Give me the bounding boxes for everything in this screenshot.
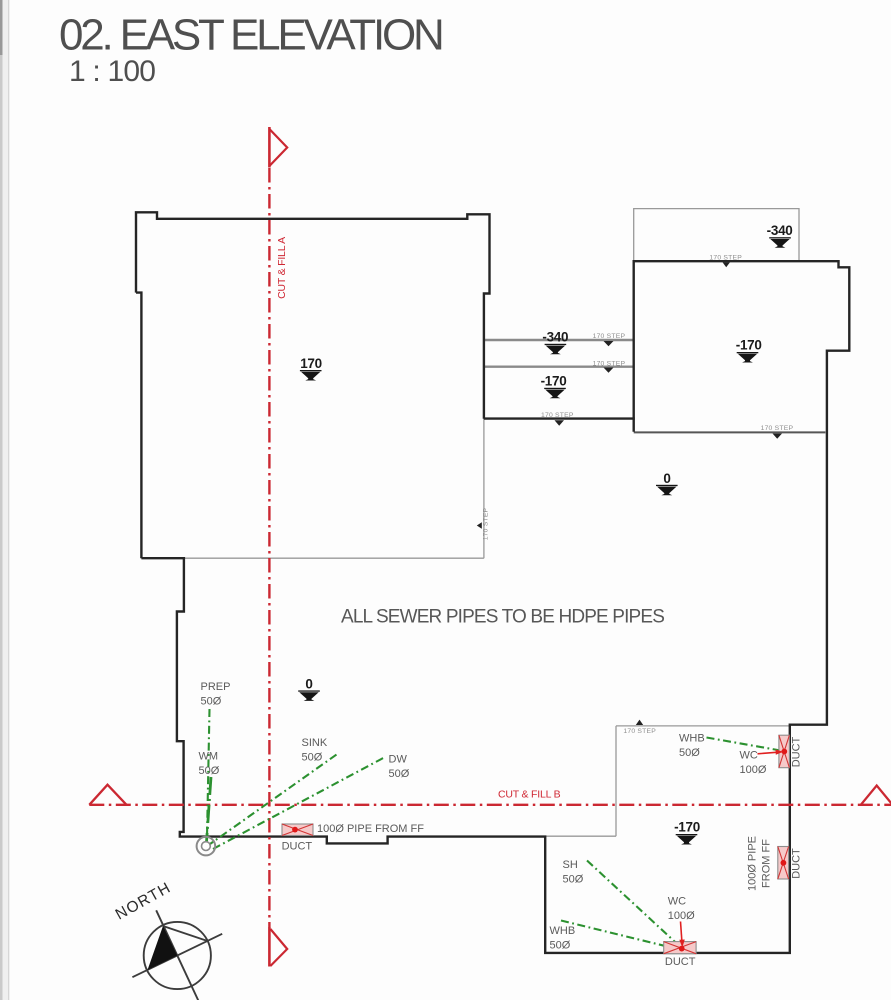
svg-text:170 STEP: 170 STEP bbox=[593, 333, 626, 340]
svg-text:170 STEP: 170 STEP bbox=[541, 412, 574, 419]
svg-text:100Ø: 100Ø bbox=[668, 910, 695, 922]
svg-text:DUCT: DUCT bbox=[282, 841, 313, 853]
svg-text:-340: -340 bbox=[542, 330, 568, 345]
svg-text:DUCT: DUCT bbox=[665, 956, 696, 968]
svg-text:NORTH: NORTH bbox=[113, 879, 174, 923]
svg-text:50Ø: 50Ø bbox=[679, 747, 700, 759]
svg-text:WC: WC bbox=[740, 750, 758, 762]
svg-text:-170: -170 bbox=[541, 374, 567, 389]
svg-text:170 STEP: 170 STEP bbox=[761, 425, 794, 432]
svg-text:170 STEP: 170 STEP bbox=[623, 728, 656, 735]
svg-text:02. EAST ELEVATION: 02. EAST ELEVATION bbox=[59, 11, 442, 60]
svg-text:0: 0 bbox=[663, 471, 670, 486]
svg-text:DW: DW bbox=[389, 754, 408, 766]
svg-text:DUCT: DUCT bbox=[791, 736, 803, 767]
svg-text:170 STEP: 170 STEP bbox=[593, 360, 626, 367]
svg-text:ALL SEWER PIPES TO BE HDPE PIP: ALL SEWER PIPES TO BE HDPE PIPES bbox=[341, 607, 664, 628]
svg-text:50Ø: 50Ø bbox=[199, 765, 220, 777]
svg-text:FROM FF: FROM FF bbox=[761, 839, 773, 888]
svg-text:SH: SH bbox=[563, 859, 578, 871]
svg-text:CUT & FILL A: CUT & FILL A bbox=[276, 237, 288, 299]
svg-text:100Ø PIPE FROM FF: 100Ø PIPE FROM FF bbox=[317, 823, 424, 835]
svg-text:DUCT: DUCT bbox=[791, 848, 803, 879]
svg-text:PREP: PREP bbox=[201, 681, 231, 693]
svg-text:170 STEP: 170 STEP bbox=[483, 507, 490, 540]
svg-text:50Ø: 50Ø bbox=[550, 940, 571, 952]
svg-text:50Ø: 50Ø bbox=[302, 752, 323, 764]
svg-text:0: 0 bbox=[305, 677, 312, 692]
svg-text:100Ø: 100Ø bbox=[740, 764, 767, 776]
svg-text:WHB: WHB bbox=[679, 733, 705, 745]
svg-text:-170: -170 bbox=[736, 338, 762, 353]
svg-text:170 STEP: 170 STEP bbox=[709, 254, 742, 261]
svg-text:-340: -340 bbox=[767, 223, 793, 238]
svg-text:WM: WM bbox=[199, 751, 219, 763]
svg-text:WC: WC bbox=[668, 896, 686, 908]
svg-text:SINK: SINK bbox=[302, 737, 328, 749]
svg-text:50Ø: 50Ø bbox=[389, 768, 410, 780]
svg-text:100Ø PIPE: 100Ø PIPE bbox=[747, 836, 759, 891]
svg-text:CUT & FILL B: CUT & FILL B bbox=[498, 789, 561, 801]
svg-text:-170: -170 bbox=[674, 820, 700, 835]
svg-text:WHB: WHB bbox=[550, 925, 576, 937]
svg-text:1 : 100: 1 : 100 bbox=[69, 55, 155, 88]
svg-text:170: 170 bbox=[300, 356, 322, 371]
svg-text:50Ø: 50Ø bbox=[563, 874, 584, 886]
svg-text:50Ø: 50Ø bbox=[201, 696, 222, 708]
